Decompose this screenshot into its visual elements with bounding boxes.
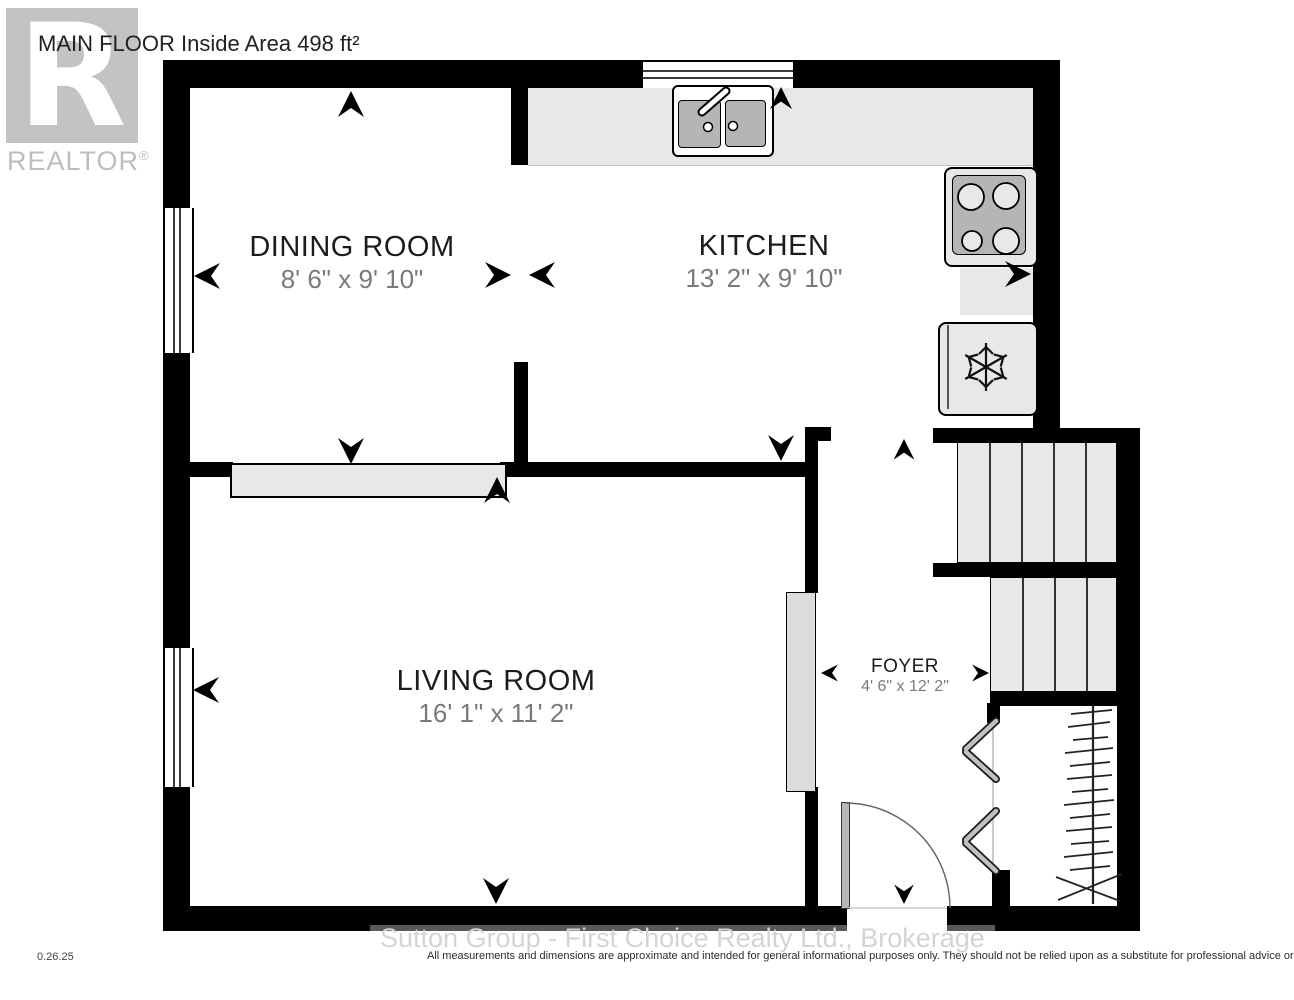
- closet-bifold-doors: [966, 721, 996, 871]
- floor-plan-page: R REALTOR® MAIN FLOOR Inside Area 498 ft…: [0, 0, 1294, 1000]
- arrow-kitchen-south: [768, 435, 794, 461]
- wall-dining-kitchen-upper-stub: [511, 88, 528, 165]
- kitchen-counter: [528, 88, 1033, 166]
- living-foyer-door-panel: [786, 592, 816, 792]
- disclaimer-text: All measurements and dimensions are appr…: [427, 950, 1294, 962]
- wall-foyer-west-upper: [805, 427, 818, 593]
- window-glass-line: [643, 70, 793, 72]
- arrow-living-south: [483, 878, 509, 904]
- stair-tread-line: [1053, 443, 1055, 562]
- stair-tread-line: [1022, 578, 1024, 691]
- sink-basin-right: [725, 100, 766, 147]
- room-name: LIVING ROOM: [397, 665, 596, 698]
- stair-tread-line: [1021, 443, 1023, 562]
- registered-mark: ®: [139, 148, 150, 163]
- stove: [944, 167, 1038, 267]
- wall-dining-living-left: [190, 462, 233, 477]
- stove-cooktop: [952, 175, 1026, 255]
- wall-right-exterior: [1117, 428, 1140, 931]
- wall-dining-kitchen-lower-stub: [514, 362, 528, 463]
- arrow-living-window: [193, 677, 219, 703]
- arrow-dining-north: [338, 91, 364, 117]
- arrow-foyer-west: [821, 665, 838, 682]
- kitchen-sink: [672, 85, 774, 157]
- arrow-dining-window: [194, 263, 220, 289]
- realtor-wordmark: REALTOR®: [7, 146, 150, 177]
- arrow-foyer-kitchen-passage: [894, 439, 915, 460]
- stair-tread-line: [989, 443, 991, 562]
- wall-stairs-top: [933, 428, 1140, 443]
- wall-left-exterior: [163, 60, 190, 931]
- realtor-logo-letter: R: [17, 8, 126, 143]
- arrow-dining-opening: [485, 262, 511, 288]
- wall-foyer-west-lower: [805, 787, 818, 907]
- window-glass-line: [173, 208, 175, 353]
- wall-stairs-middle: [933, 563, 1117, 577]
- room-name: FOYER: [861, 656, 949, 678]
- foyer-label: FOYER 4' 6" x 12' 2": [861, 656, 949, 696]
- entry-door-swing-arc: [845, 803, 950, 908]
- refrigerator: [938, 322, 1038, 416]
- room-dimensions: 4' 6" x 12' 2": [861, 678, 949, 696]
- living-room-label: LIVING ROOM 16' 1" x 11' 2": [397, 665, 596, 729]
- wall-closet-bottom-stub: [992, 870, 1010, 907]
- stairs-lower-flight: [990, 577, 1117, 692]
- wall-top-exterior: [163, 60, 1060, 88]
- arrow-dining-south: [338, 438, 364, 464]
- sink-basin-left: [678, 100, 721, 148]
- stairs-upper-flight: [957, 442, 1117, 563]
- room-name: DINING ROOM: [249, 231, 454, 264]
- page-title: MAIN FLOOR Inside Area 498 ft²: [38, 31, 360, 57]
- stair-tread-line: [1085, 443, 1087, 562]
- window-glass-line: [179, 208, 181, 353]
- arrow-kitchen-opening: [529, 262, 555, 288]
- stair-tread-line: [1054, 578, 1056, 691]
- wall-dining-living-right: [500, 462, 818, 477]
- entry-door-leaf: [841, 802, 850, 909]
- window-dining-left: [163, 208, 194, 353]
- window-living-left: [163, 648, 194, 787]
- room-dimensions: 13' 2" x 9' 10": [685, 263, 842, 294]
- window-glass-line: [179, 648, 181, 787]
- room-name: KITCHEN: [685, 230, 842, 263]
- room-dimensions: 16' 1" x 11' 2": [397, 698, 596, 729]
- refrigerator-door-line: [947, 325, 949, 409]
- wall-closet-top-stub: [987, 703, 1000, 723]
- wall-stairs-bottom: [990, 692, 1117, 706]
- date-code: 0.26.25: [37, 951, 74, 963]
- brokerage-watermark: Sutton Group - First Choice Realty Ltd.,…: [370, 925, 995, 952]
- dining-living-opening-panel: [230, 463, 507, 498]
- room-dimensions: 8' 6" x 9' 10": [249, 264, 454, 295]
- stair-tread-line: [1086, 578, 1088, 691]
- closet-hanging-rod: [1056, 706, 1122, 904]
- window-glass-line: [643, 77, 793, 79]
- arrow-foyer-east: [972, 665, 989, 682]
- realtor-logo: R: [6, 8, 138, 143]
- window-glass-line: [173, 648, 175, 787]
- arrow-entry-door: [894, 885, 914, 905]
- kitchen-counter-side: [960, 268, 1033, 315]
- dining-room-label: DINING ROOM 8' 6" x 9' 10": [249, 231, 454, 295]
- kitchen-label: KITCHEN 13' 2" x 9' 10": [685, 230, 842, 294]
